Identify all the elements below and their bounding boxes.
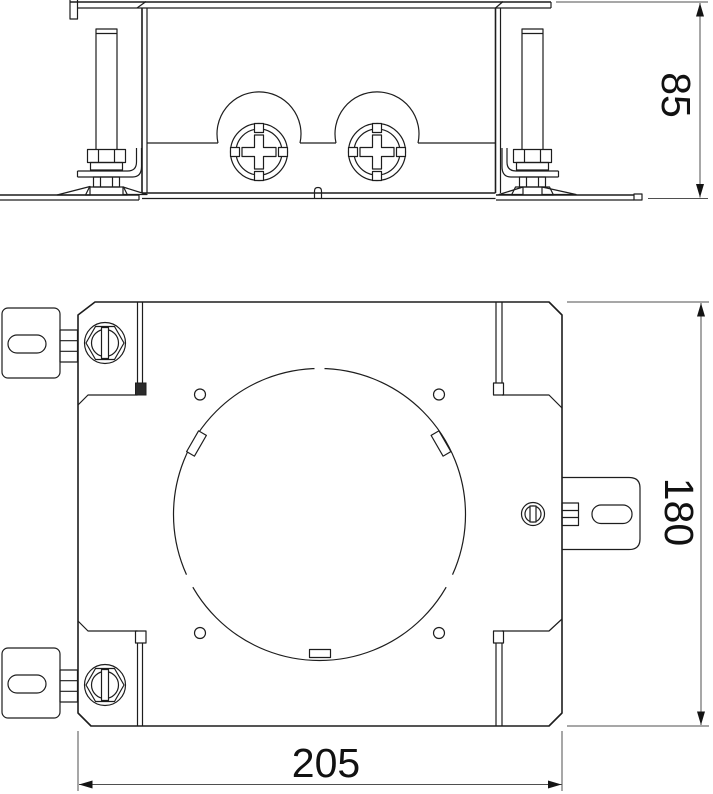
corner-screw-bottom-left <box>85 665 126 706</box>
dimension-180-label: 180 <box>656 478 702 546</box>
levelling-foot-right <box>496 29 642 200</box>
levelling-foot-left <box>0 29 147 200</box>
arrow-up <box>696 3 704 17</box>
dimension-205-label: 205 <box>292 740 360 786</box>
opening-circle <box>174 369 466 661</box>
dimension-205: 205 <box>78 731 562 791</box>
dimension-180: 180 <box>567 302 709 726</box>
tab-connector-bottom-left <box>60 670 78 702</box>
anchor-wing-left <box>57 187 90 196</box>
corner-section-top-right <box>494 302 563 408</box>
mounting-tab-top-left <box>2 308 60 378</box>
corner-section-top-left <box>78 302 146 405</box>
plan-body-outline <box>78 302 562 726</box>
dimension-85: 85 <box>556 2 708 199</box>
opening-notch-right <box>431 431 451 456</box>
knockout-left <box>231 124 288 181</box>
plate-end-cap <box>634 194 642 200</box>
arrow-right <box>548 781 562 789</box>
technical-drawing: 85 <box>0 0 713 794</box>
bracket-right <box>507 148 559 171</box>
fixing-hole <box>195 389 206 400</box>
dimension-drawing-svg: 85 <box>0 0 713 794</box>
fixing-hole <box>434 389 445 400</box>
opening-notch-bottom <box>310 650 331 658</box>
arrow-left <box>79 781 93 789</box>
knockout-right <box>349 124 406 181</box>
tab-connector-top-left <box>60 330 78 362</box>
side-screw-right <box>522 503 545 526</box>
arrow-down <box>697 712 705 726</box>
anchor-wing-right <box>542 187 576 195</box>
side-view: 85 <box>0 0 708 200</box>
anchor-wing-left <box>499 187 523 195</box>
fixing-hole <box>195 628 206 639</box>
corner-screw-top-left <box>85 323 126 364</box>
arrow-up <box>697 303 705 317</box>
mounting-tab-right <box>562 478 640 550</box>
box-body <box>142 8 501 199</box>
arrow-down <box>696 184 704 198</box>
dimension-85-label: 85 <box>653 72 699 118</box>
mounting-tab-bottom-left <box>2 648 60 718</box>
corner-section-bottom-right <box>494 619 563 726</box>
device-opening <box>174 366 466 661</box>
bracket-left <box>78 148 137 171</box>
plan-view: 180 205 <box>2 302 709 791</box>
opening-notch-left <box>187 431 207 456</box>
fixing-hole <box>434 628 445 639</box>
lid-left-edge <box>70 0 78 19</box>
